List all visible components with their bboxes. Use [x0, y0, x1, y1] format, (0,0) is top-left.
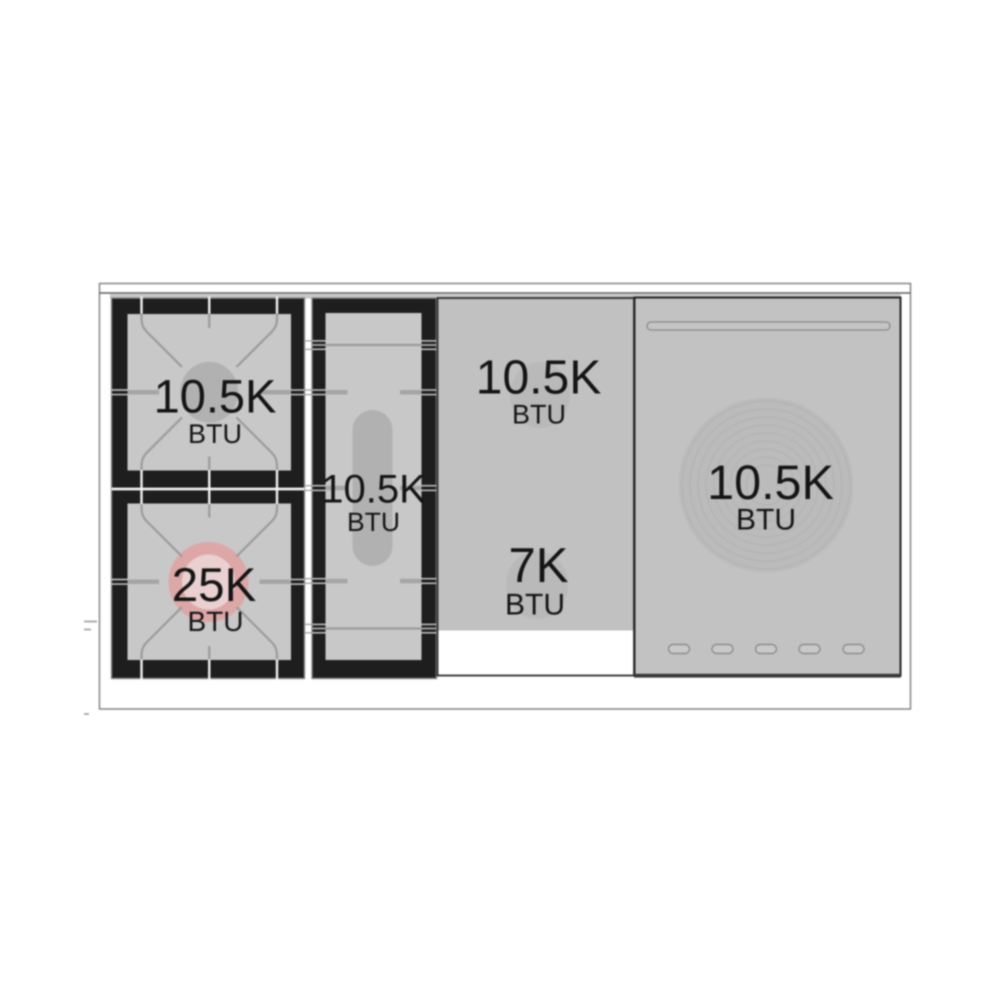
svg-text:BTU: BTU — [188, 419, 242, 449]
svg-text:10.5K: 10.5K — [476, 352, 601, 405]
svg-text:10.5K: 10.5K — [154, 370, 277, 423]
svg-text:BTU: BTU — [505, 589, 565, 622]
svg-text:25K: 25K — [172, 559, 257, 612]
svg-text:BTU: BTU — [512, 400, 566, 430]
svg-text:10.5K: 10.5K — [707, 456, 834, 510]
svg-text:BTU: BTU — [347, 507, 400, 537]
svg-text:BTU: BTU — [188, 606, 244, 637]
svg-text:10.5K: 10.5K — [321, 468, 426, 512]
svg-text:BTU: BTU — [736, 504, 796, 537]
svg-text:7K: 7K — [509, 539, 569, 593]
